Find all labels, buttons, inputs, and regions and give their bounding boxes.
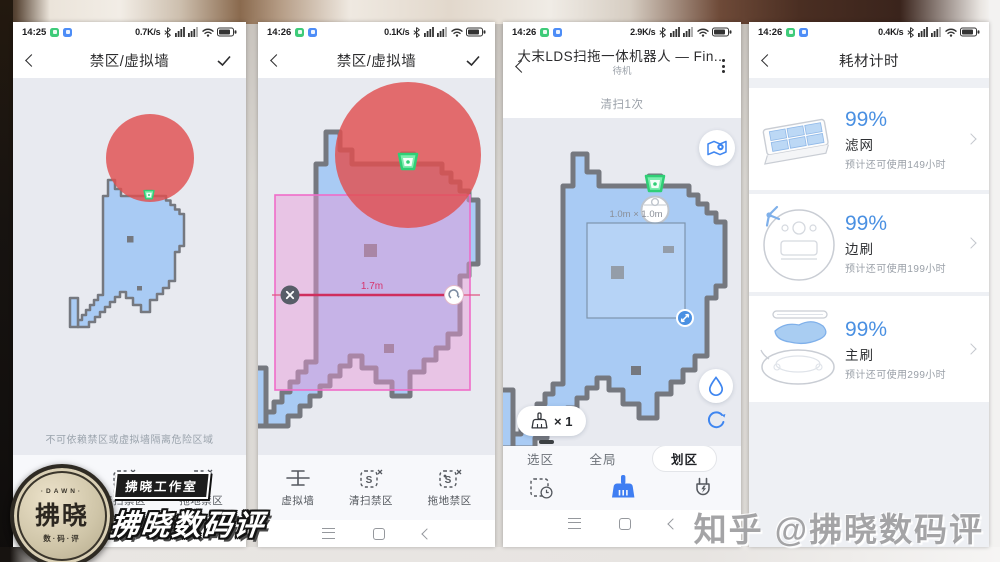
app-bar: 耗材计时 (749, 42, 989, 78)
background-photo-top (0, 0, 1000, 24)
home-icon[interactable] (619, 518, 631, 530)
filter-estimate: 预计还可使用149小时 (845, 156, 967, 171)
page-title: 耗材计时 (749, 50, 989, 71)
sidebrush-estimate: 预计还可使用199小时 (845, 260, 967, 275)
signal-icon (175, 27, 185, 37)
charge-plug-icon (691, 476, 715, 500)
notification-icon (553, 28, 562, 37)
schedule-zone-button[interactable] (529, 476, 555, 505)
dock-icon (144, 191, 154, 199)
zhihu-watermark: 知乎 @拂晓数码评 (694, 503, 984, 551)
notification-icon (63, 28, 72, 37)
go-charge-button[interactable] (691, 476, 715, 505)
mainbrush-percent: 99% (845, 318, 967, 342)
sync-icon (704, 408, 728, 432)
status-bar: 14:26 0.4K/s (749, 22, 989, 42)
app-bar: 禁区/虚拟墙 (258, 42, 495, 78)
battery-icon (466, 27, 486, 37)
tab-global[interactable]: 全局 (589, 449, 616, 468)
consumables-list: 99% 滤网 预计还可使用149小时 99% 边刷 预计还可使用199小时 (749, 78, 989, 547)
map-edit-icon (706, 138, 728, 158)
page-title: 禁区/虚拟墙 (13, 50, 246, 71)
svg-text:S: S (366, 475, 373, 486)
screen-zones-edit: 14:26 0.1K/s 禁区/虚拟墙 (258, 22, 495, 547)
device-title: 大末LDS扫拖一体机器人 — Fin... (503, 45, 741, 65)
mop-nogo-icon: S (437, 468, 463, 488)
timer-zone-icon (529, 476, 555, 500)
signal2-icon (437, 27, 447, 37)
chevron-right-icon (965, 237, 976, 248)
relocate-button[interactable] (699, 403, 733, 437)
safety-hint: 不可依赖禁区或虚拟墙隔离危险区域 (13, 431, 246, 446)
map-manage-button[interactable] (699, 130, 735, 166)
screen-robot-main: 14:26 2.9K/s 大末LDS扫拖一体机器人 — Fin... 待机 清扫… (503, 22, 741, 547)
bluetooth-icon (413, 27, 420, 38)
consumable-row-sidebrush[interactable]: 99% 边刷 预计还可使用199小时 (749, 194, 989, 292)
wifi-icon (451, 27, 463, 37)
studio-seal-logo: ·DAWN· 拂晓 数·码·评 (10, 464, 114, 562)
clock-text: 14:26 (267, 27, 291, 38)
status-bar: 14:25 0.7K/s (13, 22, 246, 42)
battery-icon (217, 27, 237, 37)
notification-icon (308, 28, 317, 37)
sidebrush-percent: 99% (845, 212, 967, 236)
sweep-nogo-icon: S (358, 468, 384, 488)
sweep-nogo-button[interactable]: S 清扫禁区 (349, 468, 393, 508)
notification-icon (540, 28, 549, 37)
sidebrush-name: 边刷 (845, 238, 967, 258)
wall-icon (285, 468, 311, 488)
background-photo-right (989, 0, 1000, 562)
signal-icon (424, 27, 434, 37)
signal-icon (670, 27, 680, 37)
wall-delete-handle[interactable] (281, 286, 300, 305)
clean-times-pill[interactable]: × 1 (517, 406, 586, 436)
clock-text: 14:26 (758, 27, 782, 38)
restricted-circle (106, 114, 194, 202)
mainbrush-image (749, 307, 845, 391)
signal2-icon (683, 27, 693, 37)
map-area[interactable]: 1.0m × 1.0m × 1 (503, 118, 741, 446)
background-photo-left (0, 0, 13, 562)
water-level-button[interactable] (699, 369, 733, 403)
clock-text: 14:25 (22, 27, 46, 38)
mop-nogo-rect[interactable] (275, 195, 470, 390)
app-bar: 禁区/虚拟墙 (13, 42, 246, 78)
filter-image (749, 106, 845, 172)
mode-tabs: 选区 全局 划区 (503, 446, 741, 470)
signal-icon (918, 27, 928, 37)
status-bar: 14:26 0.1K/s (258, 22, 495, 42)
dock-icon (646, 176, 664, 191)
net-speed: 0.7K/s (135, 27, 160, 37)
battery-icon (960, 27, 980, 37)
signal2-icon (188, 27, 198, 37)
filter-name: 滤网 (845, 134, 967, 154)
wifi-icon (945, 27, 957, 37)
bluetooth-icon (659, 27, 666, 38)
consumable-row-filter[interactable]: 99% 滤网 预计还可使用149小时 (749, 88, 989, 190)
recents-icon[interactable] (568, 518, 581, 529)
seal-bottom-text: 数·码·评 (43, 533, 81, 544)
tab-zoned[interactable]: 划区 (652, 445, 717, 472)
seal-top-text: ·DAWN· (41, 488, 83, 495)
status-bar: 14:26 2.9K/s (503, 22, 741, 42)
tab-select-zone[interactable]: 选区 (527, 449, 554, 468)
water-drop-icon (706, 375, 726, 397)
filter-percent: 99% (845, 108, 967, 132)
zone-resize-handle[interactable] (677, 310, 693, 326)
broom-icon (608, 474, 638, 502)
wall-rotate-handle[interactable] (445, 286, 464, 305)
bluetooth-icon (164, 27, 171, 38)
map-area[interactable]: 不可依赖禁区或虚拟墙隔离危险区域 (13, 78, 246, 455)
obstacle (137, 286, 142, 291)
clean-zone-rect[interactable] (587, 223, 685, 318)
zone-size-label: 1.0m × 1.0m (609, 209, 662, 220)
notification-icon (786, 28, 795, 37)
screen-consumables: 14:26 0.4K/s 耗材计时 (749, 22, 989, 547)
wifi-icon (202, 27, 214, 37)
home-icon[interactable] (373, 528, 385, 540)
obstacle (127, 236, 134, 243)
net-speed: 0.4K/s (878, 27, 903, 37)
map-canvas (13, 78, 246, 455)
bluetooth-icon (907, 27, 914, 38)
chevron-right-icon (965, 343, 976, 354)
consumable-row-mainbrush[interactable]: 99% 主刷 预计还可使用299小时 (749, 296, 989, 402)
pill-indicator (539, 440, 554, 444)
battery-icon (712, 27, 732, 37)
page-title: 禁区/虚拟墙 (258, 50, 495, 71)
studio-name: 拂晓工作室 (113, 472, 210, 499)
sidebrush-image (749, 201, 845, 285)
mainbrush-estimate: 预计还可使用299小时 (845, 366, 967, 381)
wifi-icon (697, 27, 709, 37)
device-state: 待机 (503, 63, 741, 77)
obstacle (631, 366, 641, 375)
virtual-wall-button[interactable]: 虚拟墙 (281, 468, 314, 508)
notification-icon (50, 28, 59, 37)
wall-length-label: 1.7m (361, 281, 383, 292)
notification-icon (295, 28, 304, 37)
notification-icon (799, 28, 808, 37)
clean-times-value: × 1 (554, 414, 572, 429)
chevron-right-icon (965, 133, 976, 144)
map-area[interactable]: 1.7m (258, 78, 495, 455)
system-nav-bar (258, 520, 495, 547)
app-bar: 大末LDS扫拖一体机器人 — Fin... 待机 (503, 42, 741, 90)
net-speed: 2.9K/s (630, 27, 655, 37)
nav-back-icon[interactable] (421, 528, 432, 539)
dock-icon (399, 154, 417, 169)
clock-text: 14:26 (512, 27, 536, 38)
net-speed: 0.1K/s (384, 27, 409, 37)
zone-toolbar: 虚拟墙 S 清扫禁区 S 拖地禁区 (258, 455, 495, 520)
clean-count-text: 清扫1次 (503, 90, 741, 118)
broom-outline-icon (531, 412, 548, 430)
start-clean-button[interactable] (608, 474, 638, 507)
nav-back-icon[interactable] (667, 518, 678, 529)
map-canvas: 1.7m (258, 78, 495, 455)
mainbrush-name: 主刷 (845, 344, 967, 364)
channel-name: 拂晓数码评 (108, 502, 267, 544)
seal-main-text: 拂晓 (35, 496, 89, 532)
signal2-icon (931, 27, 941, 37)
recents-icon[interactable] (322, 528, 335, 539)
collage: 14:25 0.7K/s 禁区/虚拟墙 (0, 0, 1000, 562)
studio-watermark: 拂晓工作室 拂晓数码评 (108, 472, 271, 544)
mop-nogo-button[interactable]: S 拖地禁区 (428, 468, 472, 508)
